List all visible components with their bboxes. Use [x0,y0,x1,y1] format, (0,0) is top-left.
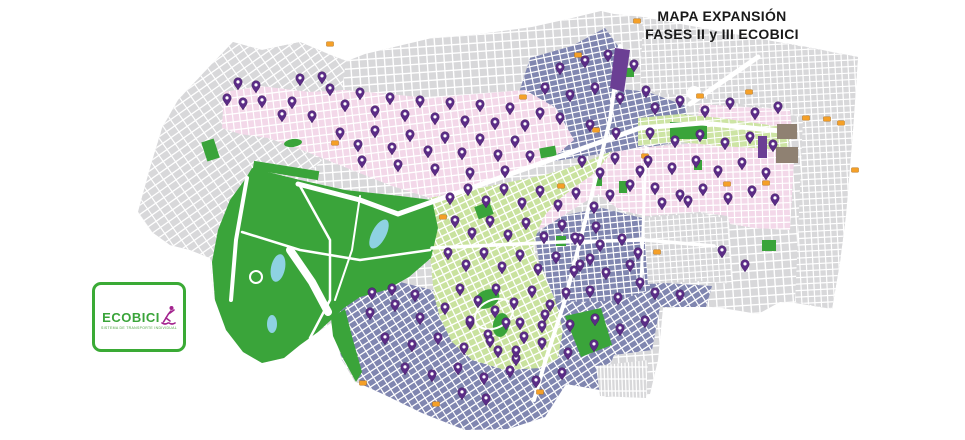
orange-marker [803,116,810,120]
map-title: MAPA EXPANSIÓN FASES II y III ECOBICI [612,7,832,43]
metro-line-strip [758,136,767,158]
orange-marker [537,390,544,394]
orange-marker [852,168,859,172]
orange-marker [360,381,367,385]
orange-marker [332,141,339,145]
orange-marker [824,117,831,121]
orange-marker [724,182,731,186]
cyclist-icon [160,305,176,325]
ecobici-logo-tagline: SISTEMA DE TRANSPORTE INDIVIDUAL [101,326,177,330]
orange-marker [558,184,565,188]
orange-marker [838,121,845,125]
map-title-line1: MAPA EXPANSIÓN [612,7,832,25]
lake [267,315,277,333]
park-pushkin-park [762,240,776,251]
orange-marker [697,94,704,98]
ecobici-logo: ECOBICI SISTEMA DE TRANSPORTE INDIVIDUAL [92,282,186,352]
city-map [0,0,965,440]
orange-marker [575,53,582,57]
orange-marker [327,42,334,46]
orange-marker [440,215,447,219]
ecobici-logo-word: ECOBICI [102,310,160,325]
map-title-line2: FASES II y III ECOBICI [612,25,832,43]
orange-marker [593,128,600,132]
brown-block [776,147,798,163]
orange-marker [763,181,770,185]
brown-block [777,124,797,139]
orange-marker [520,95,527,99]
orange-marker [746,90,753,94]
ecobici-expansion-poster: MAPA EXPANSIÓN FASES II y III ECOBICI EC… [0,0,965,440]
orange-marker [654,250,661,254]
orange-marker [433,402,440,406]
